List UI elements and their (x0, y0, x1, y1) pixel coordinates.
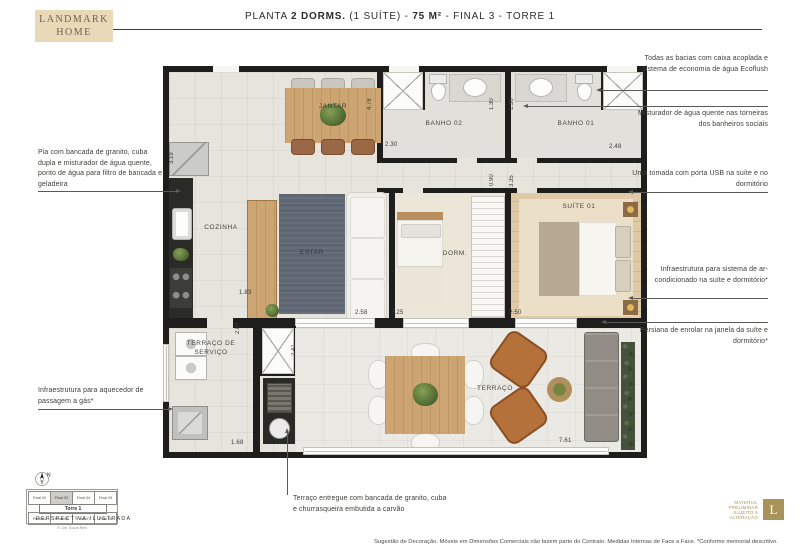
servico-line2: SERVIÇO (173, 349, 249, 358)
door-opening (457, 158, 477, 163)
perspectiva-label: PERSPECTIVA ILUSTRADA (36, 516, 131, 522)
wall (253, 328, 260, 452)
footer-disclaimer: Sugestão de Decoração. Móveis em Dimensõ… (356, 539, 796, 545)
sofa-cushion (350, 197, 385, 238)
nightstand-lamp (623, 202, 638, 217)
title-bold: 2 DORMS. (291, 11, 346, 22)
room-label-servico: TERRAÇO DE SERVIÇO (173, 340, 249, 358)
window-suite (515, 318, 577, 328)
terrace-railing (303, 447, 609, 455)
dimension: 1.30 (489, 86, 498, 110)
dimension: 2.50 (509, 310, 521, 316)
logo-box: LANDMARK HOME (35, 10, 113, 42)
dimension: 2.30 (385, 142, 397, 148)
leader-line (600, 90, 768, 91)
servico-line1: TERRAÇO DE (173, 340, 249, 349)
leader-line (287, 431, 288, 495)
annotation-bacias: Todas as bacias com caixa acoplada e sis… (630, 54, 768, 75)
suite-bed-sheet (579, 222, 617, 296)
room-label-dorm: DORM. (425, 250, 485, 257)
annotation-aquecedor: Infraestrutura para aquecedor de passage… (38, 386, 160, 407)
round-table (547, 377, 572, 402)
landmark-floorplan-sheet: { "logo": { "line1": "LANDMARK", "line2"… (0, 0, 800, 560)
door-opening (517, 158, 537, 163)
dimension: 2.25 (391, 310, 403, 316)
room-label-banho01: BANHO 01 (511, 120, 641, 127)
title-rule (113, 29, 762, 30)
material-preliminar-note: MATERIAL PRELIMINAR SUJEITO A ALTERAÇÃO (696, 500, 758, 521)
annotation-tomada-usb: Uma tomada com porta USB na suíte e no d… (630, 169, 768, 190)
title-part: - FINAL 3 - TORRE 1 (442, 11, 555, 22)
dining-chair (321, 139, 345, 155)
wardrobe (471, 196, 505, 318)
shower-banho01 (601, 72, 643, 110)
title-bold: 75 M² (412, 11, 442, 22)
nightstand-lamp (623, 300, 638, 315)
key-plan: Final 02 Final 03 Final 04 Final 05 Torr… (26, 486, 118, 534)
dimension: 7.61 (559, 438, 571, 444)
page-title: PLANTA 2 DORMS. (1 SUÍTE) - 75 M² - FINA… (120, 11, 680, 22)
dimension: 3.35 (509, 163, 518, 187)
dimension: 3.19 (169, 140, 178, 164)
planter (621, 342, 635, 450)
shower-banho02 (383, 72, 425, 110)
window-dorm (403, 318, 469, 328)
floor-plan: BANHO 02 BANHO 01 JANTAR COZINHA ESTAR D… (163, 66, 647, 458)
kitchen-plant (173, 248, 189, 261)
dimension: 4.78 (367, 86, 376, 110)
window-servico (163, 344, 169, 402)
bbq-grill (267, 383, 292, 413)
suite-bed-blanket (539, 222, 579, 296)
leader-arrow (176, 189, 181, 193)
annotation-pia: Pia com bancada de granito, cuba dupla e… (38, 148, 164, 190)
bed-headboard (397, 212, 443, 220)
leader-arrow (168, 407, 173, 411)
annotation-churrasqueira: Terraço entregue com bancada de granito,… (293, 494, 451, 515)
room-label-cozinha: COZINHA (189, 224, 253, 231)
basin-banho02 (463, 78, 487, 97)
leader-line (527, 106, 768, 107)
window (389, 66, 419, 72)
leader-arrow (523, 104, 528, 108)
dimension: 2.41 (291, 332, 300, 356)
outdoor-chair (463, 396, 484, 425)
leader-line (38, 191, 176, 192)
suite-pillow (615, 260, 631, 292)
leader-line (38, 409, 168, 410)
leader-arrow (601, 320, 606, 324)
bed-blanket (397, 266, 443, 305)
dining-chair (291, 139, 315, 155)
dimension: 2.58 (355, 310, 367, 316)
room-label-estar: ESTAR (279, 249, 345, 256)
title-part: (1 SUÍTE) - (346, 11, 413, 22)
dimension: 1.83 (239, 290, 251, 296)
basin-banho01 (529, 78, 553, 97)
logo-line1: LANDMARK (35, 14, 113, 27)
dimension: 0.90 (489, 162, 498, 186)
leader-line (605, 322, 768, 323)
dimension: 1.30 (509, 86, 518, 110)
dryer (175, 356, 207, 380)
room-label-terraco: TERRAÇO (459, 385, 531, 392)
floor-plant (266, 304, 279, 317)
dining-chair (351, 139, 375, 155)
leader-arrow (596, 88, 601, 92)
leader-arrow (285, 428, 289, 433)
leader-line (632, 192, 768, 193)
brand-mark: L (762, 498, 785, 521)
bed-pillow (401, 224, 441, 238)
annotation-ar-condicionado: Infraestrutura para sistema de ar-condic… (630, 265, 768, 286)
door-opening (207, 318, 233, 328)
dimension: 2.84 (235, 310, 244, 334)
outdoor-table-plant (413, 383, 438, 406)
sofa-cushion (350, 238, 385, 279)
room-label-banho02: BANHO 02 (383, 120, 505, 127)
annotation-persiana: Persiana de enrolar na janela da suíte e… (630, 326, 768, 347)
dimension: 2.48 (609, 144, 621, 150)
leader-line (632, 298, 768, 299)
key-plan-street: R. Cel. Souza Reis (26, 526, 118, 530)
leader-arrow (628, 190, 633, 194)
logo-line2: HOME (35, 27, 113, 40)
title-part: PLANTA (245, 11, 291, 22)
material-line: ALTERAÇÃO (696, 515, 758, 520)
cooktop (170, 268, 192, 308)
entry-door-opening (213, 66, 239, 72)
dimension: 1.68 (231, 440, 243, 446)
suite-pillow (615, 226, 631, 258)
window-estar (295, 318, 375, 328)
laundry-tank-basin (178, 412, 202, 434)
outdoor-sofa (584, 332, 619, 442)
room-label-suite: SUÍTE 01 (543, 203, 615, 210)
svg-text:N: N (47, 473, 51, 479)
leader-arrow (628, 296, 633, 300)
brand-letter: L (770, 502, 778, 518)
annotation-misturador: Misturador de água quente nas torneiras … (630, 109, 768, 130)
